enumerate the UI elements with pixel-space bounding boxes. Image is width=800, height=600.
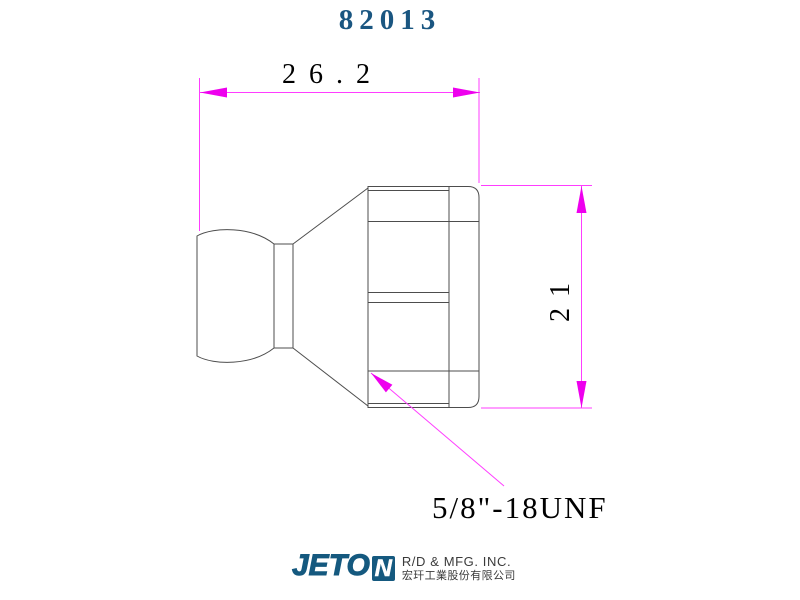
dimension-arrows [200,88,587,409]
dim-height-value: 21 [545,272,577,322]
part-outline [197,187,479,408]
cone-top-line [293,188,368,244]
company-name-zh: 宏玕工業股份有限公司 [402,570,516,582]
ball-end-outline [197,230,274,363]
dim-width-value: 26.2 [282,59,383,91]
arrow-down-icon [577,381,587,408]
company-name-en: R/D & MFG. INC. [402,555,516,568]
cone-bottom-line [293,348,368,406]
dimension-lines [200,78,593,486]
brand-n-square-icon: N [372,556,395,581]
page-title: 82013 [300,4,480,37]
arrow-right-icon [453,88,480,98]
brand-text: JETO [292,552,370,580]
technical-drawing-svg [0,0,800,600]
neck-outline [274,244,293,348]
body-outline [368,187,479,408]
brand-wordmark: JETO N [292,552,395,581]
arrow-left-icon [200,88,227,98]
leader-line-thread [371,373,504,486]
leader-arrow-icon [371,373,392,392]
drawing-sheet: 82013 26.2 21 5/8"-18UNF JETO N R/D & MF… [0,0,800,600]
company-logo: JETO N R/D & MFG. INC. 宏玕工業股份有限公司 [292,552,516,582]
arrow-up-icon [577,186,587,213]
thread-spec-label: 5/8"-18UNF [432,490,608,526]
company-text-block: R/D & MFG. INC. 宏玕工業股份有限公司 [402,555,516,582]
